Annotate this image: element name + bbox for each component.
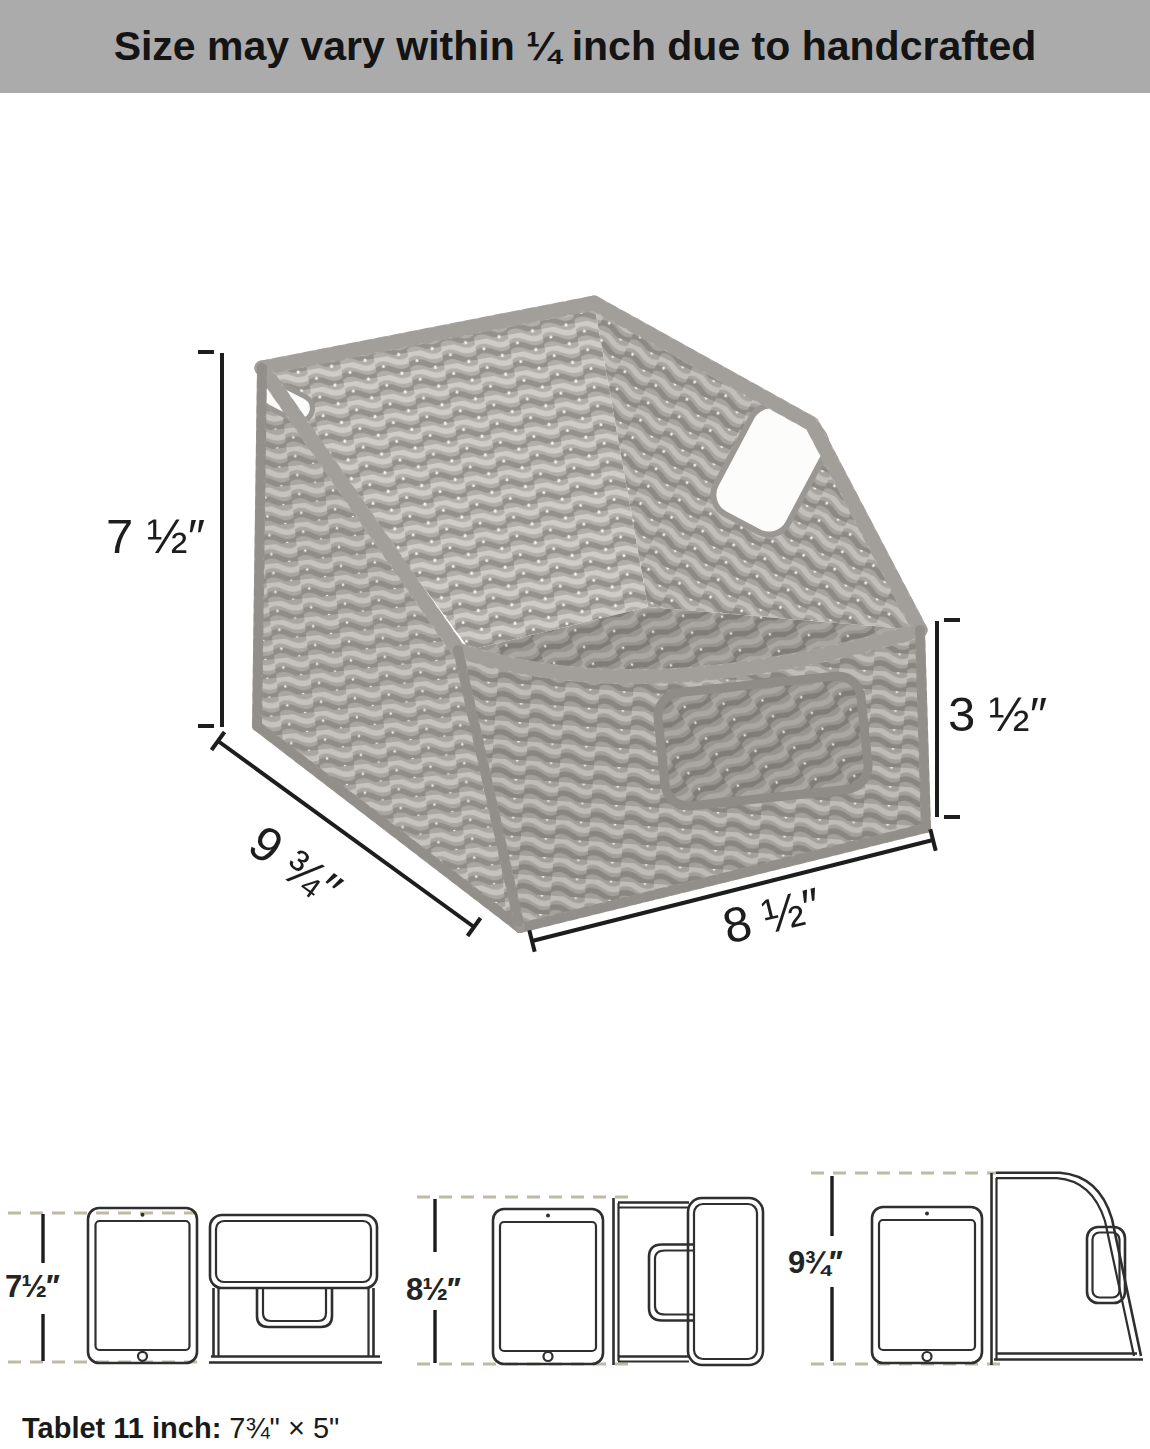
fit-diagram-front bbox=[8, 1208, 382, 1363]
basket-front-view-icon bbox=[209, 1215, 382, 1363]
fit-height-label-3: 9¾′′ bbox=[788, 1247, 842, 1278]
tablet-front-icon bbox=[88, 1208, 197, 1363]
tablet-size-caption: Tablet 11 inch:7¾" × 5" bbox=[22, 1412, 339, 1445]
fit-diagram-art bbox=[8, 1173, 1143, 1365]
basket-side-view-icon bbox=[992, 1173, 1144, 1365]
basket-top-view-icon bbox=[614, 1198, 764, 1365]
caption-label: Tablet 11 inch: bbox=[22, 1412, 221, 1444]
basket-photo bbox=[257, 303, 926, 928]
product-size-infographic: Size may vary within ¼ inch due to handc… bbox=[0, 0, 1150, 1449]
fit-diagram-top bbox=[417, 1197, 763, 1365]
tablet-front-icon bbox=[872, 1207, 982, 1363]
front-height-label: 3 ½″ bbox=[948, 690, 1047, 739]
caption-value: 7¾" × 5" bbox=[229, 1412, 339, 1444]
tablet-camera-dot bbox=[141, 1213, 145, 1217]
fit-height-label-2: 8½′′ bbox=[406, 1274, 460, 1305]
tablet-home-button bbox=[138, 1352, 147, 1361]
front-width-end-tick bbox=[930, 829, 935, 850]
front-width-start-tick bbox=[529, 930, 534, 951]
tablet-camera-dot bbox=[925, 1212, 929, 1216]
back-height-label: 7 ½″ bbox=[106, 512, 205, 561]
fit-height-label-1: 7½′′ bbox=[5, 1271, 59, 1302]
tablet-home-button bbox=[544, 1352, 553, 1361]
side-depth-end-tick bbox=[468, 918, 481, 936]
tablet-front-icon bbox=[493, 1209, 603, 1364]
basket-front-handle-cutout bbox=[656, 674, 871, 809]
tablet-camera-dot bbox=[546, 1214, 550, 1218]
fit-diagram-side bbox=[811, 1173, 1143, 1365]
side-depth-start-tick bbox=[212, 732, 225, 750]
tablet-home-button bbox=[923, 1352, 932, 1361]
